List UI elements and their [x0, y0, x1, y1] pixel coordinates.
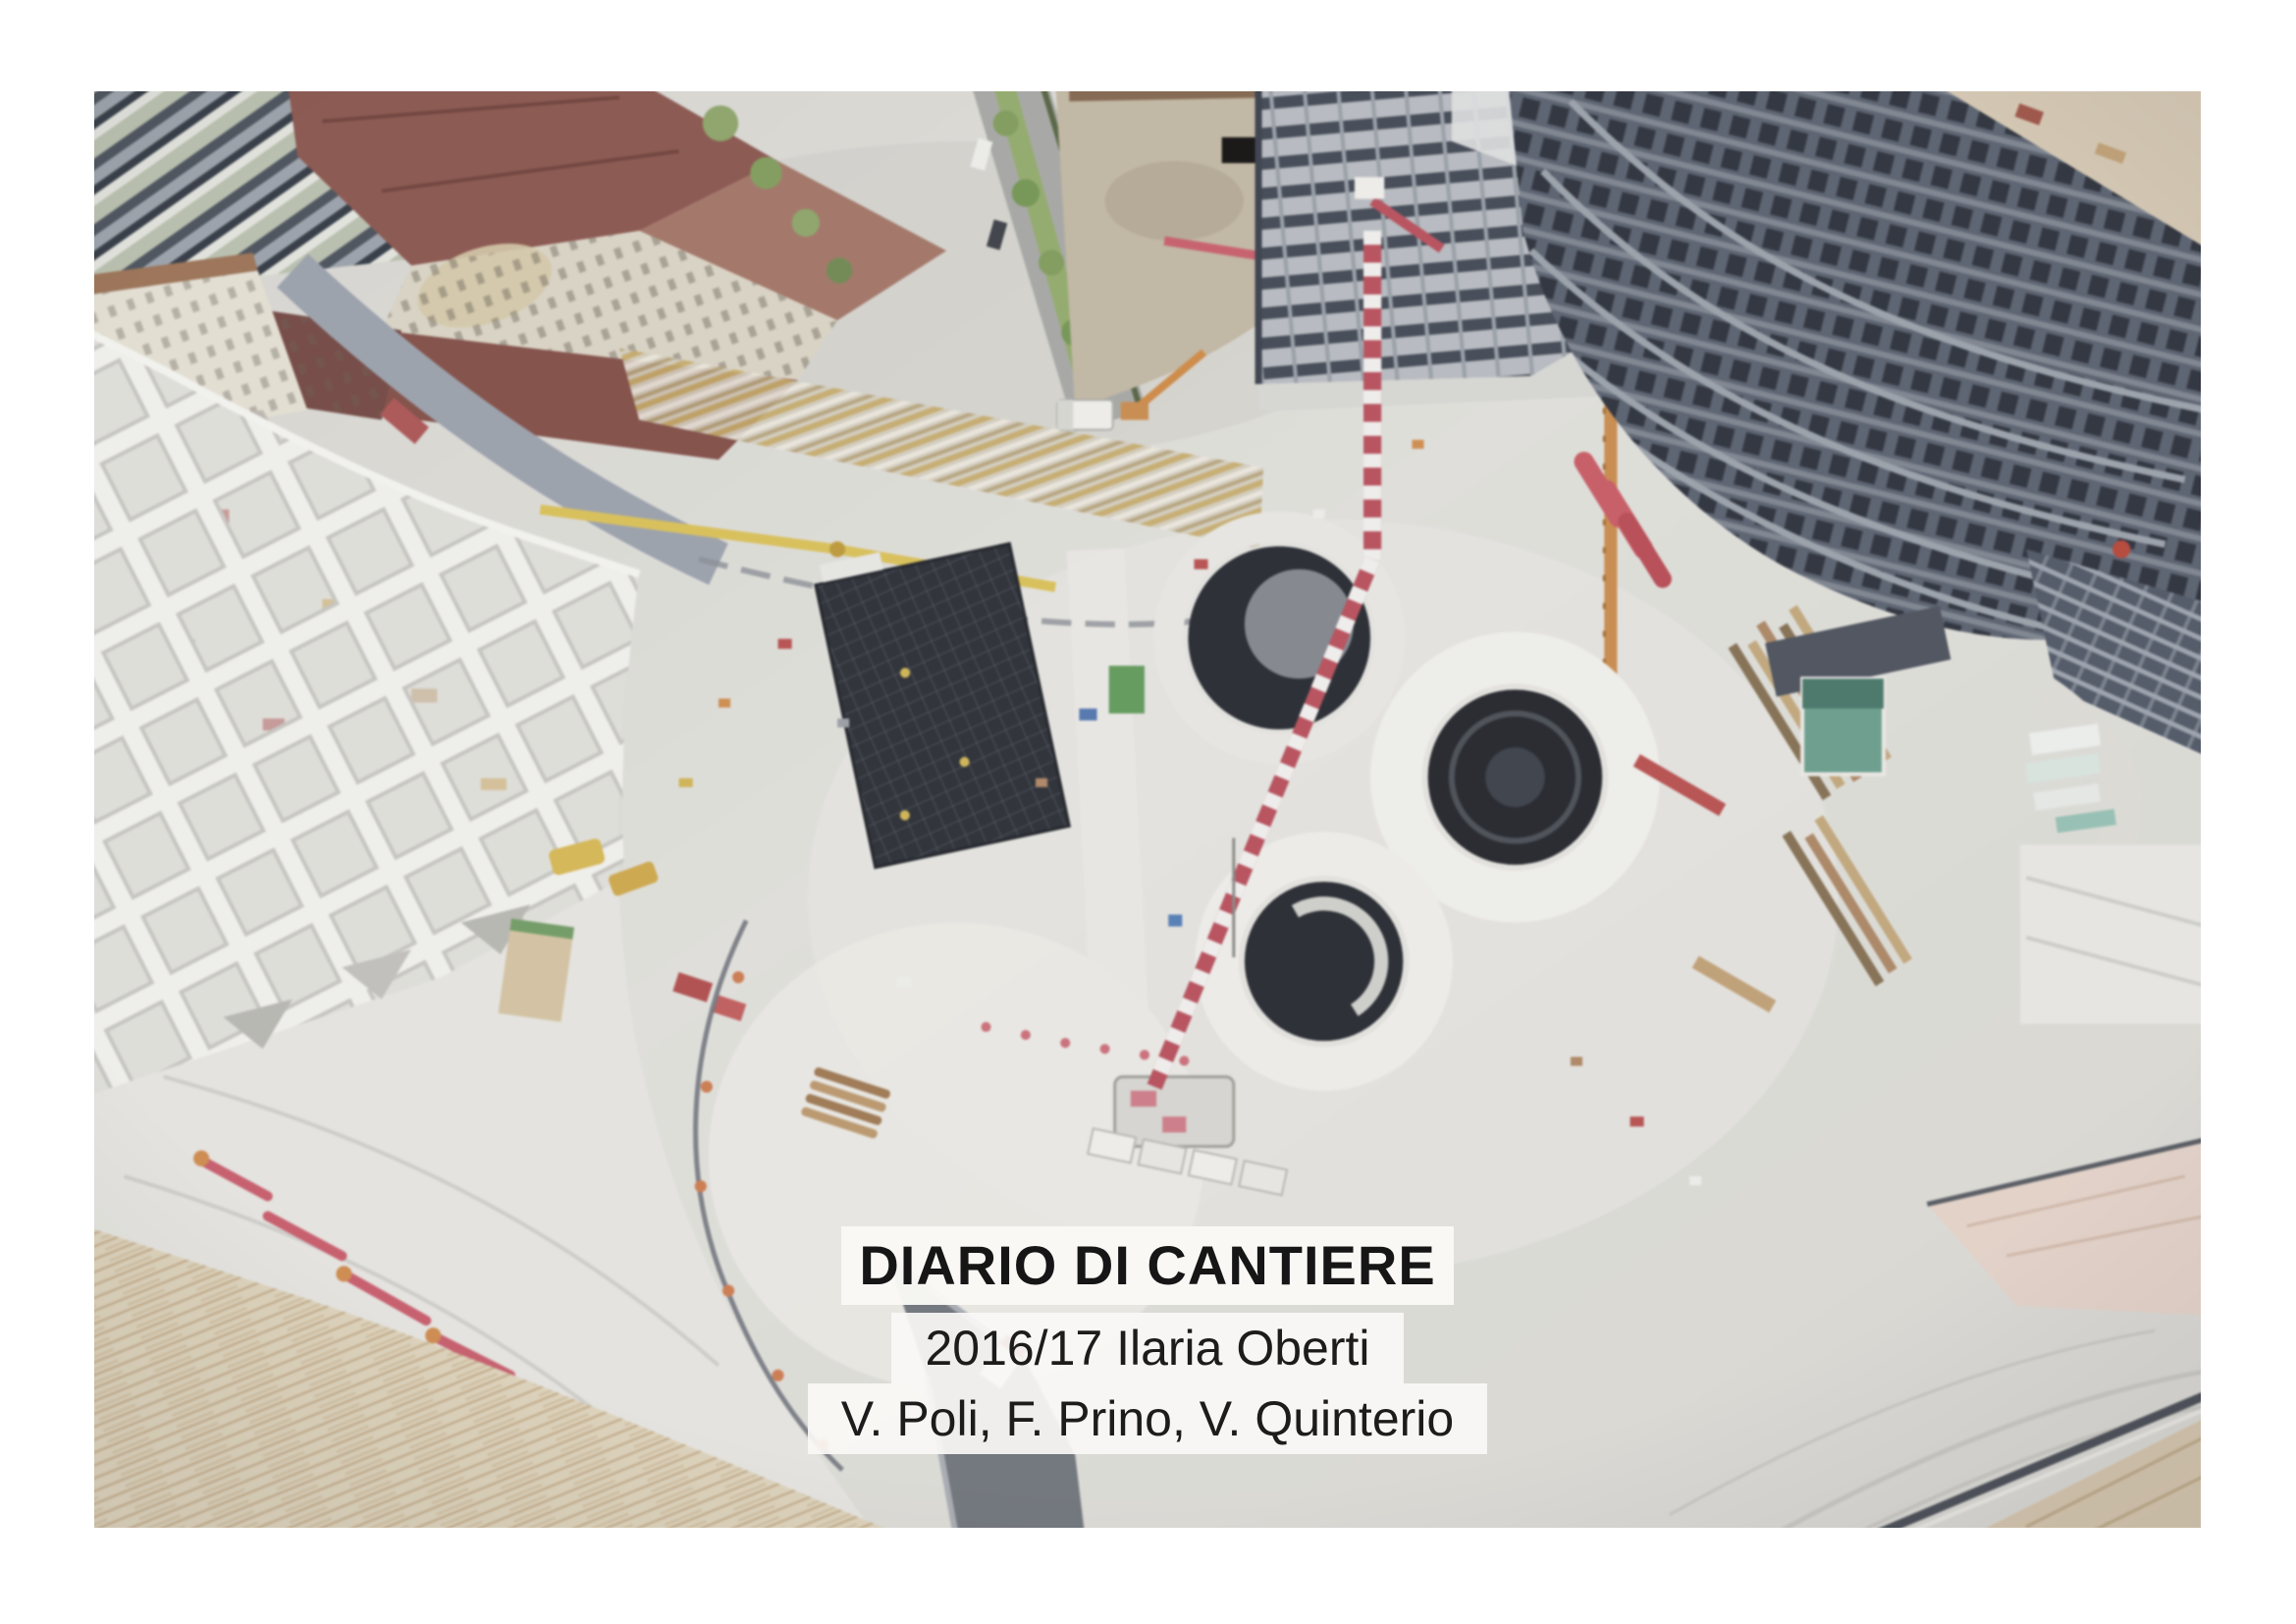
cover-caption: DIARIO DI CANTIERE 2016/17 Ilaria Oberti… — [94, 1226, 2201, 1454]
construction-site-aerial-photo: DIARIO DI CANTIERE 2016/17 Ilaria Oberti… — [94, 91, 2201, 1528]
cover-authors: 2016/17 Ilaria Oberti V. Poli, F. Prino,… — [808, 1313, 1487, 1454]
cover-page: DIARIO DI CANTIERE 2016/17 Ilaria Oberti… — [0, 0, 2296, 1624]
cover-title: DIARIO DI CANTIERE — [841, 1226, 1453, 1305]
cover-author-line-1: 2016/17 Ilaria Oberti — [891, 1313, 1403, 1383]
cover-author-line-2: V. Poli, F. Prino, V. Quinterio — [808, 1383, 1487, 1454]
